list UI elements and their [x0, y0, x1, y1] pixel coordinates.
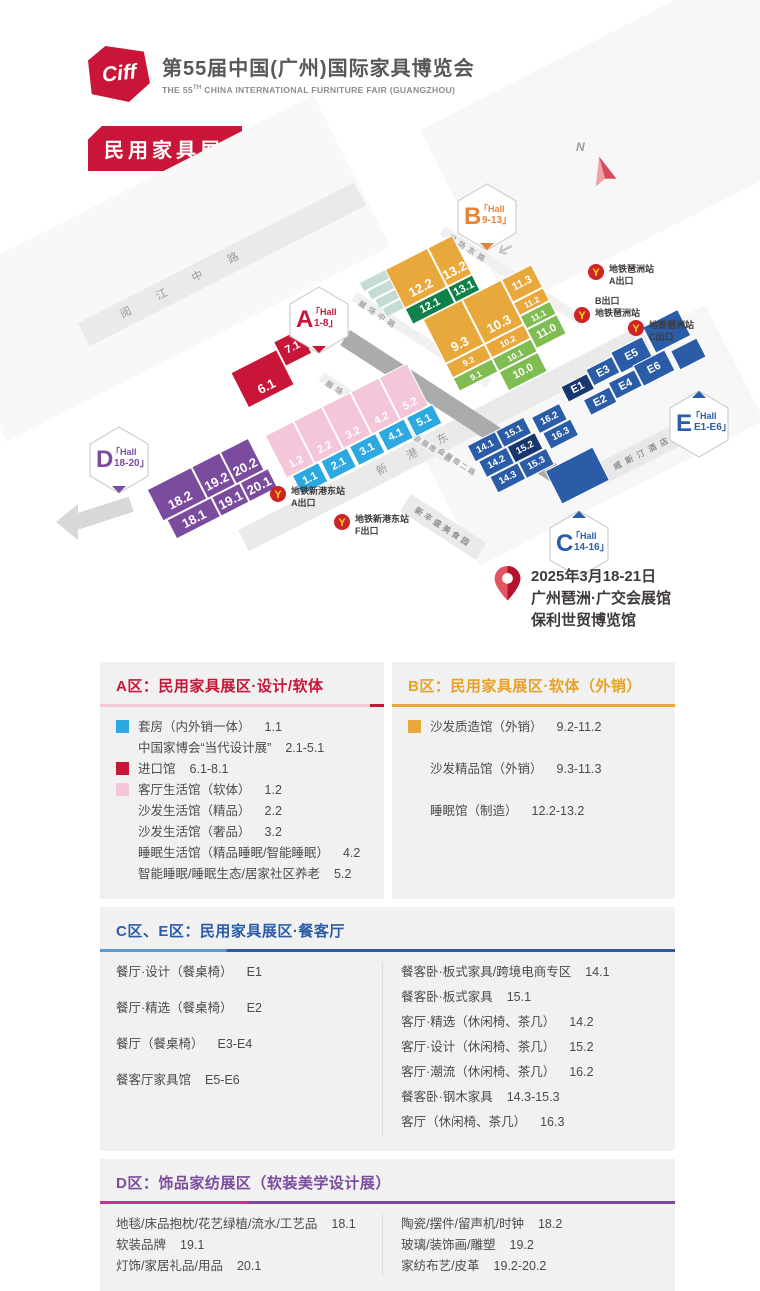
svg-text:Y: Y	[578, 310, 586, 322]
hall-badge-a: A 「Hall1-8」	[288, 286, 350, 354]
hall-badge-b: B 「Hall9-13」	[456, 183, 518, 251]
road-interchange-icon	[56, 492, 140, 556]
legend-item: 沙发生活馆（奢品）3.2	[116, 822, 368, 843]
badge-hall-label: 「Hall9-13」	[479, 204, 512, 227]
metro-station-pazhou-c: Y 地铁琶洲站C出口	[628, 320, 694, 343]
page: Ciff 第55届中国(广州)国际家具博览会 THE 55TH CHINA IN…	[0, 0, 760, 1291]
location-venue-1: 广州琶洲·广交会展馆	[531, 588, 671, 610]
legend-item: 睡眠馆（制造）12.2-13.2	[408, 801, 659, 822]
legend-item: 餐厅·精选（餐桌椅）E2	[116, 998, 382, 1019]
badge-hall-label: 「Hall14-16」	[571, 531, 610, 554]
legend-item: 餐厅·设计（餐桌椅）E1	[116, 962, 382, 983]
ciff-logo: Ciff	[88, 46, 150, 102]
legend-underline-b	[392, 704, 675, 707]
metro-station-pazhou-b: Y B出口地铁琶洲站	[574, 296, 640, 323]
legend-item: 睡眠生活馆（精品睡眠/智能睡眠）4.2	[116, 843, 368, 864]
legend: A区：民用家具展区·设计/软体 套房（内外销一体）1.1 中国家博会“当代设计展…	[100, 662, 675, 1291]
badge-hall-label: 「HallE1-E6」	[691, 411, 732, 434]
legend-item: 灯饰/家居礼品/用品20.1	[116, 1256, 382, 1277]
legend-item: 沙发精品馆（外销）9.3-11.3	[408, 759, 659, 780]
metro-icon: Y	[574, 307, 590, 323]
swatch-cyan	[116, 720, 129, 733]
swatch-gold	[408, 720, 421, 733]
svg-text:Y: Y	[338, 517, 346, 529]
location-venue-2: 保利世贸博览馆	[531, 610, 671, 632]
legend-item: 餐客厅家具馆E5-E6	[116, 1070, 382, 1091]
legend-title-d: D区：饰品家纺展区（软装美学设计展）	[116, 1172, 659, 1193]
legend-item: 地毯/床品抱枕/花艺绿植/流水/工艺品18.1	[116, 1214, 382, 1235]
hall-badge-d: D 「Hall18-20」	[88, 426, 150, 494]
legend-item: 软装品牌19.1	[116, 1235, 382, 1256]
legend-item: 智能睡眠/睡眠生态/居家社区养老5.2	[116, 864, 368, 885]
fair-title-en: THE 55TH CHINA INTERNATIONAL FURNITURE F…	[162, 85, 475, 95]
legend-item: 家纺布艺/皮革19.2-20.2	[401, 1256, 659, 1277]
metro-icon: Y	[588, 264, 604, 280]
svg-text:Y: Y	[632, 323, 640, 335]
legend-item: 客厅·设计（休闲椅、茶几）15.2	[401, 1037, 659, 1058]
legend-title-ce: C区、E区：民用家具展区·餐客厅	[116, 920, 659, 941]
legend-underline-ce	[100, 949, 675, 952]
swatch-red	[116, 762, 129, 775]
ciff-logo-text: Ciff	[101, 60, 138, 87]
legend-section-ce: C区、E区：民用家具展区·餐客厅 餐厅·设计（餐桌椅）E1 餐厅·精选（餐桌椅）…	[100, 907, 675, 1151]
legend-item: 客厅·精选（休闲椅、茶几）14.2	[401, 1012, 659, 1033]
metro-station-pazhou-a: Y 地铁琶洲站A出口	[588, 264, 654, 287]
legend-item: 餐厅（餐桌椅）E3-E4	[116, 1034, 382, 1055]
svg-text:Y: Y	[592, 267, 600, 279]
legend-section-a: A区：民用家具展区·设计/软体 套房（内外销一体）1.1 中国家博会“当代设计展…	[100, 662, 384, 899]
legend-item: 套房（内外销一体）1.1	[116, 717, 368, 738]
legend-item: 餐客卧·板式家具15.1	[401, 987, 659, 1008]
svg-text:Y: Y	[274, 489, 282, 501]
location-date: 2025年3月18-21日	[531, 566, 671, 588]
legend-title-a: A区：民用家具展区·设计/软体	[116, 675, 368, 696]
venue-map: 阅 江 中 路 新 港 东 路 展场东路 展场中路 展场西路 会展南一路 会展南…	[0, 140, 760, 662]
fair-title-cn: 第55届中国(广州)国际家具博览会	[162, 52, 475, 81]
metro-icon: Y	[628, 320, 644, 336]
legend-underline-a	[100, 704, 384, 707]
legend-title-b: B区：民用家具展区·软体（外销）	[408, 675, 659, 696]
badge-hall-label: 「Hall18-20」	[111, 447, 150, 470]
legend-section-d: D区：饰品家纺展区（软装美学设计展） 地毯/床品抱枕/花艺绿植/流水/工艺品18…	[100, 1159, 675, 1291]
metro-station-xingangdong-f: Y 地铁新港东站F出口	[334, 514, 409, 537]
legend-underline-d	[100, 1201, 675, 1204]
legend-item: 客厅生活馆（软体）1.2	[116, 780, 368, 801]
badge-hall-label: 「Hall1-8」	[311, 307, 338, 330]
legend-item: 客厅（休闲椅、茶几）16.3	[401, 1112, 659, 1133]
location-info: 2025年3月18-21日 广州琶洲·广交会展馆 保利世贸博览馆	[494, 566, 671, 631]
badge-letter: E	[676, 410, 692, 438]
hall-badge-e: E 「HallE1-E6」	[668, 390, 730, 458]
legend-item: 中国家博会“当代设计展”2.1-5.1	[116, 738, 368, 759]
legend-item: 进口馆6.1-8.1	[116, 759, 368, 780]
north-label: N	[576, 140, 618, 154]
north-arrow-icon	[588, 155, 618, 187]
metro-icon: Y	[334, 514, 350, 530]
location-pin-icon	[494, 566, 521, 601]
swatch-pink	[116, 783, 129, 796]
fair-title: 第55届中国(广州)国际家具博览会 THE 55TH CHINA INTERNA…	[162, 52, 475, 95]
legend-item: 餐客卧·板式家具/跨境电商专区14.1	[401, 962, 659, 983]
legend-item: 沙发质造馆（外销）9.2-11.2	[408, 717, 659, 738]
legend-section-b: B区：民用家具展区·软体（外销） 沙发质造馆（外销）9.2-11.2 沙发精品馆…	[392, 662, 675, 899]
legend-item: 客厅·潮流（休闲椅、茶几）16.2	[401, 1062, 659, 1083]
legend-item: 玻璃/装饰画/雕塑19.2	[401, 1235, 659, 1256]
legend-item: 沙发生活馆（精品）2.2	[116, 801, 368, 822]
legend-item: 陶瓷/摆件/留声机/时钟18.2	[401, 1214, 659, 1235]
metro-station-xingangdong-a: Y 地铁新港东站A出口	[270, 486, 345, 509]
legend-item: 餐客卧·钢木家具14.3-15.3	[401, 1087, 659, 1108]
metro-icon: Y	[270, 486, 286, 502]
north-indicator: N	[574, 140, 618, 192]
